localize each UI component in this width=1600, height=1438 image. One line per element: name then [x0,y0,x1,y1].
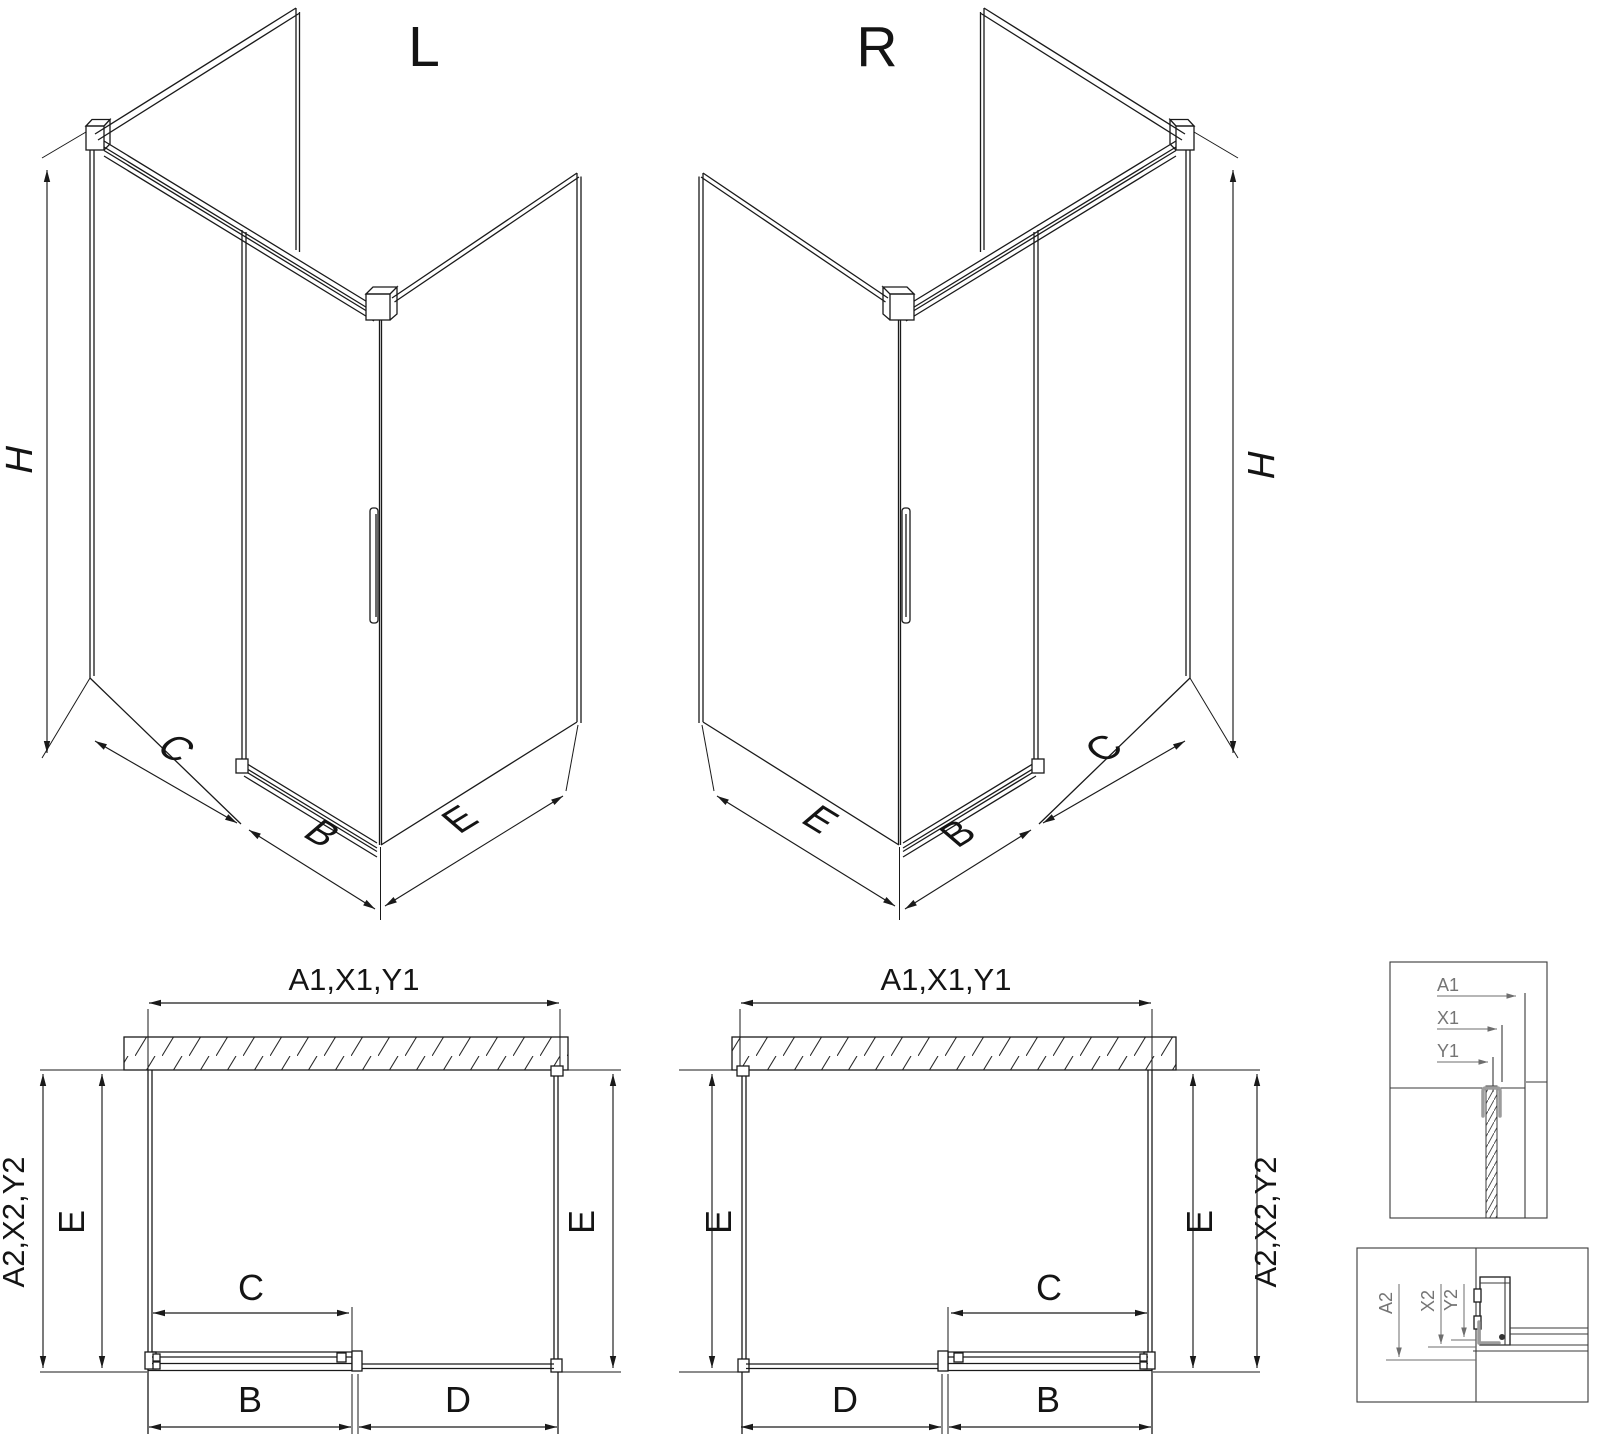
detail-glass-panel-hatched [1486,1086,1497,1218]
height-extension-lines-r [1190,132,1238,758]
top-rail-r [906,141,1176,321]
detail-label-a1: A1 [1437,975,1459,995]
fixed-panel-c-r [1039,150,1190,824]
detail-wall-box [1390,962,1547,1218]
left-glass-panel-plan-l [148,1070,152,1434]
dim-label-total-width-plan-l: A1,X1,Y1 [289,962,420,997]
right-glass-end-cap-plan-l [551,1359,562,1372]
door-track-band-plan-l [148,1352,352,1371]
track-clip-right-plan-r [1140,1362,1147,1369]
iso-view-right: R H C B E [699,8,1282,920]
wall-hatched-strip-plan-l [124,1037,568,1070]
dim-label-fixed-r: C [1076,727,1133,770]
track-roller-right-plan-r [1140,1354,1147,1361]
dim-label-total-width-plan-r: A1,X1,Y1 [881,962,1012,997]
dim-label-side-r: E [792,799,847,841]
wall-hatched-strip-plan-r [732,1037,1176,1070]
dim-label-side-right-plan-l: E [561,1210,602,1234]
corner-post-l [366,294,390,320]
detail-label-y2: Y2 [1441,1289,1461,1311]
right-glass-panel-plan-l [554,1070,558,1434]
track-roller-left-plan-l [153,1354,160,1361]
detail-label-x1: X1 [1437,1008,1459,1028]
dim-label-total-depth-plan-l: A2,X2,Y2 [0,1157,31,1288]
sliding-door-edge-r [1034,230,1038,763]
technical-drawing-page: L H C B E R [0,0,1600,1438]
detail-floor-section: A2 X2 Y2 [1357,1248,1588,1402]
side-dim-line-l [385,796,563,906]
right-glass-panel-plan-r [1148,1070,1152,1434]
height-extension-lines-l [42,132,90,758]
side-ext-lines-plan-l [40,1070,621,1372]
dim-label-door-l: B [294,813,349,855]
dim-label-fixed-plan-l: D [445,1379,471,1420]
side-panel-e-l [381,173,581,845]
track-roller-left-plan-r [954,1353,963,1362]
left-glass-wall-bracket-plan-r [737,1066,749,1076]
corner-edge-l [380,320,382,845]
bottom-track-cap-r [1032,759,1044,773]
dim-label-side-left-plan-r: E [698,1210,739,1234]
detail-roller-axle-dot [1499,1334,1505,1340]
fixed-panel-c-l [90,150,241,824]
detail-wall-section: A1 X1 Y1 [1390,962,1547,1218]
track-end-bracket-plan-r [938,1351,948,1371]
dim-label-height-r: H [1239,446,1282,482]
track-roller-right-plan-l [337,1353,346,1362]
right-glass-wall-bracket-plan-l [551,1066,563,1076]
sliding-door-edge-l [242,230,246,763]
sill-line-plan-l [362,1364,554,1369]
corner-post-r [890,294,914,320]
detail-label-a2: A2 [1376,1292,1396,1314]
left-glass-end-cap-plan-r [738,1359,749,1372]
top-rail-l [104,141,374,321]
corner-edge-r [899,320,901,845]
plan-view-left: A1,X1,Y1 A2,X2,Y2 E E C B D [0,962,621,1434]
side-ext-lines-plan-r [679,1070,1260,1372]
side-dim-ext-l [566,725,578,791]
plan-view-right: A1,X1,Y1 E E A2,X2,Y2 C D B [679,962,1283,1434]
bottom-track-cap-l [236,759,248,773]
sill-line-plan-r [746,1364,938,1369]
track-end-bracket-plan-l [352,1351,362,1371]
detail-wall-structure [1390,993,1547,1218]
shower-enclosure-dimension-diagram: L H C B E R [0,0,1600,1438]
dim-label-fixed-plan-r: D [832,1379,858,1420]
door-track-band-plan-r [948,1352,1152,1371]
dim-label-door-plan-l: B [238,1379,262,1420]
dim-label-door-r: B [931,813,986,855]
bottom-ext-lines-plan-r [942,1374,948,1434]
detail-floor-box [1357,1248,1588,1402]
dim-label-door-plan-r: B [1036,1379,1060,1420]
back-wall-panel-r [981,8,1186,252]
track-clip-left-plan-l [153,1362,160,1369]
side-dim-line-r [717,796,895,906]
detail-label-x2: X2 [1418,1290,1438,1312]
view-title-left: L [408,15,440,79]
detail-label-y1: Y1 [1437,1041,1459,1061]
dim-label-side-right-plan-r: E [1179,1210,1220,1234]
detail-clip-upper [1474,1289,1481,1302]
back-wall-panel-l [95,8,300,252]
left-glass-panel-plan-r [742,1070,746,1434]
view-title-right: R [856,15,897,79]
door-handle-l [370,508,378,623]
dim-label-side-l: E [433,799,488,841]
dim-label-fixed-l: C [147,727,204,770]
side-dim-ext-r [702,725,714,791]
dim-label-opening-plan-l: C [238,1267,264,1308]
dim-label-total-depth-plan-r: A2,X2,Y2 [1248,1157,1283,1288]
side-panel-e-r [699,173,899,845]
bottom-ext-lines-plan-l [352,1374,358,1434]
iso-view-left: L H C B E [0,8,581,920]
dim-label-side-left-plan-l: E [51,1210,92,1234]
dim-label-opening-plan-r: C [1036,1267,1062,1308]
dim-label-height-l: H [0,441,41,477]
